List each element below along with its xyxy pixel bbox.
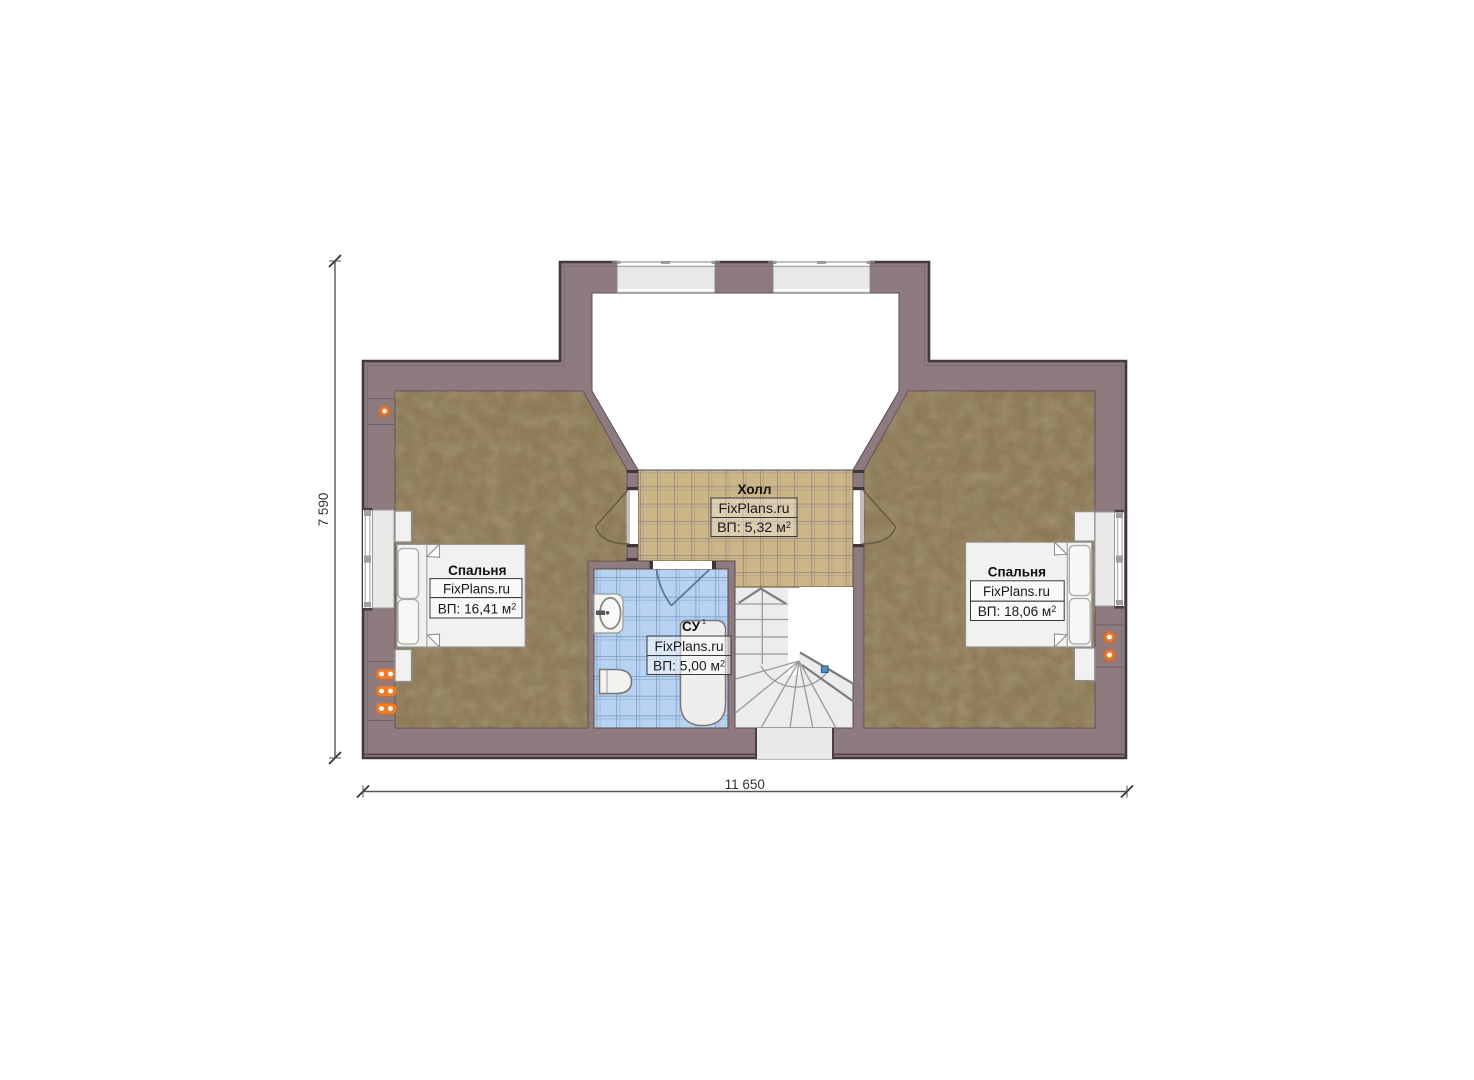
svg-text:FixPlans.ru: FixPlans.ru — [983, 584, 1050, 599]
svg-text:Спальня: Спальня — [448, 563, 506, 578]
svg-text:FixPlans.ru: FixPlans.ru — [654, 639, 723, 654]
svg-text:ВП: 5,00 м2: ВП: 5,00 м2 — [653, 659, 725, 674]
svg-text:7 590: 7 590 — [316, 493, 331, 527]
svg-text:ВП: 5,32 м2: ВП: 5,32 м2 — [717, 520, 791, 536]
svg-text:FixPlans.ru: FixPlans.ru — [443, 582, 510, 597]
svg-text:Спальня: Спальня — [988, 565, 1046, 580]
svg-text:СУ: СУ — [682, 619, 701, 634]
svg-text:11 650: 11 650 — [725, 777, 765, 792]
svg-text:Холл: Холл — [738, 482, 772, 497]
svg-text:FixPlans.ru: FixPlans.ru — [719, 501, 790, 517]
svg-text:ВП: 16,41 м2: ВП: 16,41 м2 — [438, 602, 517, 617]
svg-text:ВП: 18,06 м2: ВП: 18,06 м2 — [978, 604, 1057, 619]
svg-text:1: 1 — [702, 619, 706, 626]
